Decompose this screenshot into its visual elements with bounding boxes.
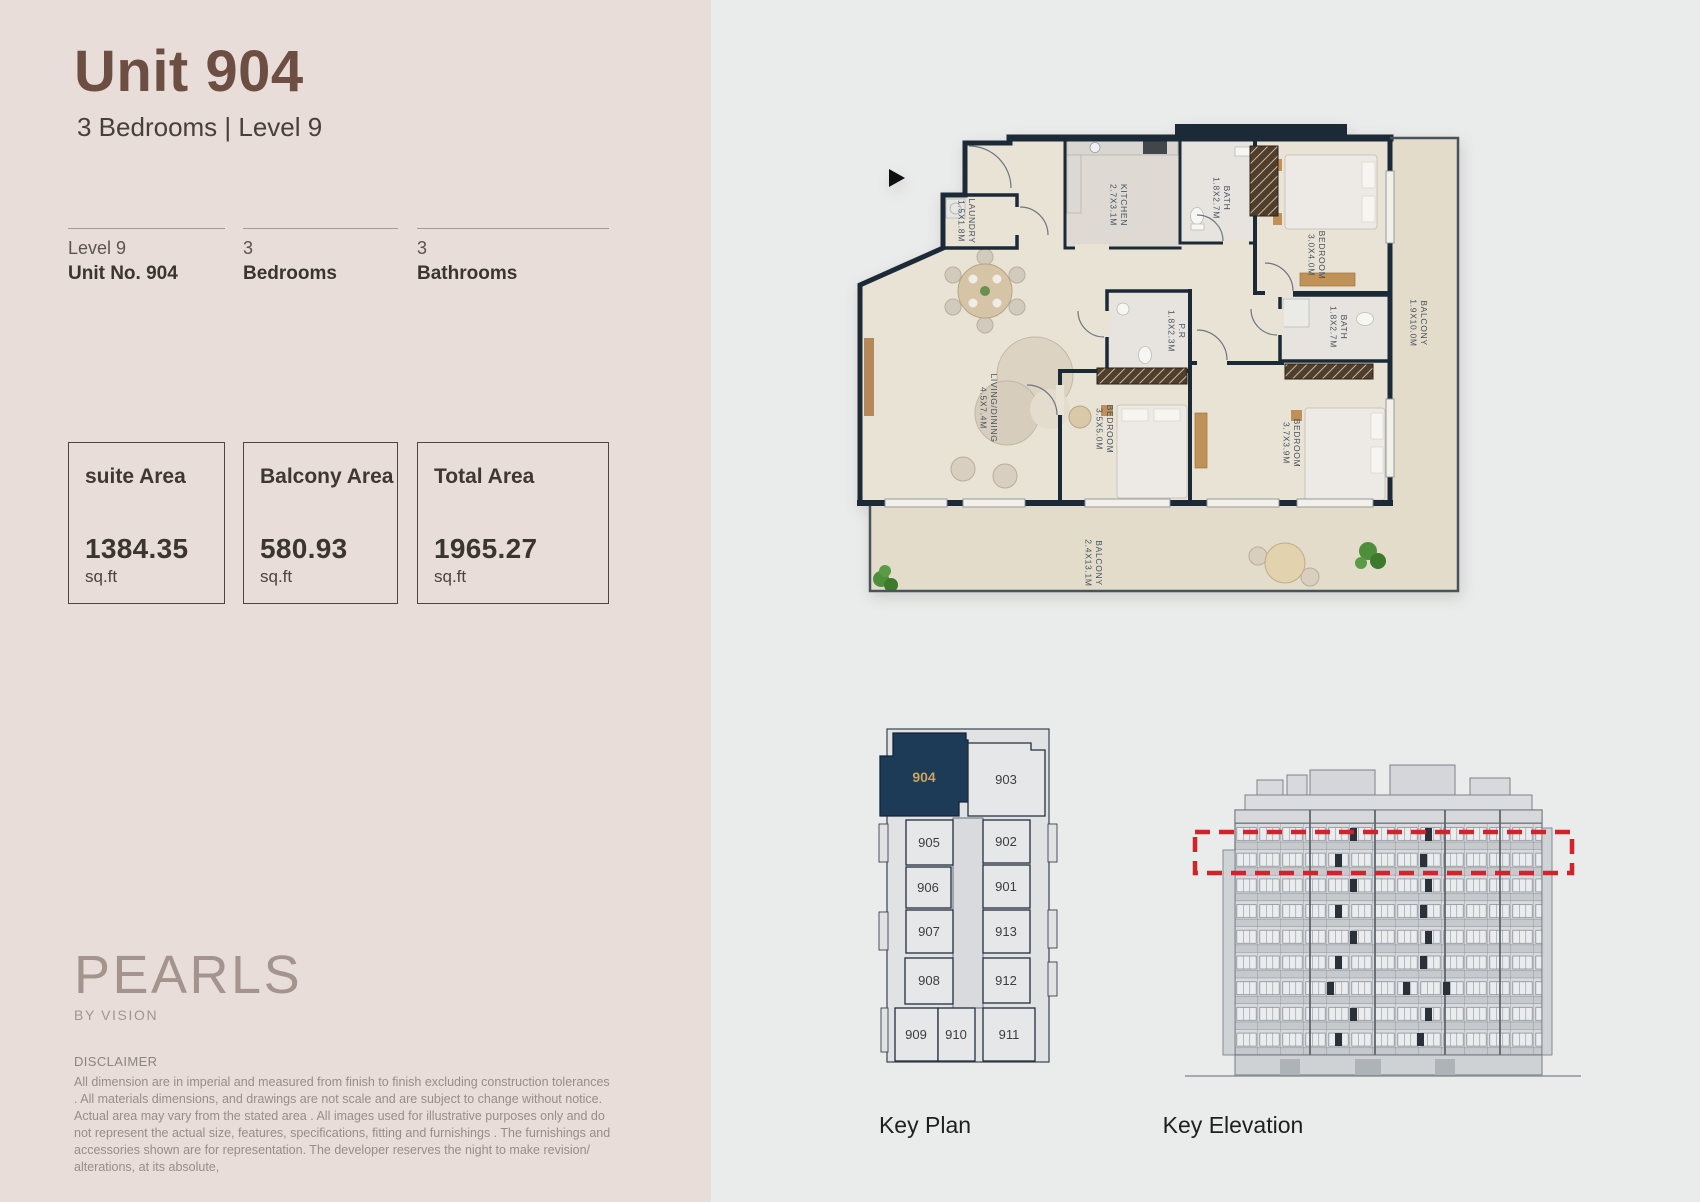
total-area-unit: sq.ft [434,567,608,587]
svg-text:KITCHEN2.7X3.1M: KITCHEN2.7X3.1M [1109,184,1130,226]
tv-console [864,338,874,416]
spec-level: Level 9 Unit No. 904 [68,228,225,285]
balcony-area-unit: sq.ft [260,567,397,587]
spec-bedrooms-label: Bedrooms [243,263,398,285]
disclaimer-body: All dimension are in imperial and measur… [74,1074,614,1176]
svg-text:912: 912 [995,973,1017,988]
total-area-value: 1965.27 [434,533,608,565]
suite-area-label: suite Area [85,465,224,489]
svg-text:909: 909 [905,1027,927,1042]
svg-text:BEDROOM3.7X3.9M: BEDROOM3.7X3.9M [1282,419,1303,468]
svg-text:908: 908 [918,973,940,988]
unit-number-904: 904 [912,769,936,785]
left-panel: Unit 904 3 Bedrooms | Level 9 Level 9 Un… [0,0,711,1202]
suite-area-unit: sq.ft [85,567,224,587]
floor-plan-image: LAUNDRY1.5X1.8M KITCHEN2.7X3.1M BATH1.8X… [845,113,1467,610]
svg-text:901: 901 [995,879,1017,894]
suite-area-value: 1384.35 [85,533,224,565]
svg-text:BALCONY1.9X10.0M: BALCONY1.9X10.0M [1409,299,1430,346]
balcony-area-value: 580.93 [260,533,397,565]
svg-text:903: 903 [995,772,1017,787]
svg-text:BEDROOM3.0X4.0M: BEDROOM3.0X4.0M [1307,231,1328,280]
svg-text:910: 910 [945,1027,967,1042]
total-area-box: Total Area 1965.27 sq.ft [417,442,609,604]
balcony-area-box: Balcony Area 580.93 sq.ft [243,442,398,604]
facade [1235,810,1542,1055]
svg-text:BALCONY2.4X13.1M: BALCONY2.4X13.1M [1084,539,1105,586]
svg-text:LAUNDRY1.5X1.8M: LAUNDRY1.5X1.8M [957,198,978,243]
svg-text:913: 913 [995,924,1017,939]
roof-structures [1245,765,1532,810]
right-wing [1542,828,1552,1055]
key-plan-image: 904 903 905 902 906 901 907 913 908 912 … [863,726,1063,1066]
suite-area-box: suite Area 1384.35 sq.ft [68,442,225,604]
parapet-bar [1175,124,1347,137]
spec-bathrooms-label: Bathrooms [417,263,609,285]
spec-bathrooms: 3 Bathrooms [417,228,609,285]
parapet-band [1235,810,1542,823]
svg-text:905: 905 [918,835,940,850]
brand-logo: PEARLS [74,944,302,1006]
disclaimer-block: DISCLAIMER All dimension are in imperial… [74,1054,614,1176]
brand-block: PEARLS BY VISION [74,944,302,1023]
key-elevation-caption: Key Elevation [1108,1112,1358,1139]
left-wing [1223,850,1235,1055]
svg-text:BEDROOM3.5X5.0M: BEDROOM3.5X5.0M [1095,405,1116,454]
page-title: Unit 904 [74,38,304,105]
spec-level-line1: Level 9 [68,238,225,259]
page-subtitle: 3 Bedrooms | Level 9 [77,112,322,143]
svg-text:907: 907 [918,924,940,939]
spec-bedrooms: 3 Bedrooms [243,228,398,285]
armchair [951,457,975,481]
armchair [993,464,1017,488]
svg-text:906: 906 [917,880,939,895]
svg-text:902: 902 [995,834,1017,849]
brand-tagline: BY VISION [74,1007,302,1023]
key-plan-caption: Key Plan [825,1112,1025,1139]
spec-bathrooms-count: 3 [417,238,609,259]
spec-level-line2: Unit No. 904 [68,263,225,285]
brochure-page: Unit 904 3 Bedrooms | Level 9 Level 9 Un… [0,0,1700,1202]
balcony-area-label: Balcony Area [260,465,397,489]
key-elevation-image [1185,748,1585,1093]
svg-text:911: 911 [999,1027,1020,1042]
spec-bedrooms-count: 3 [243,238,398,259]
disclaimer-heading: DISCLAIMER [74,1054,614,1069]
total-area-label: Total Area [434,465,608,489]
elevation-building [1185,765,1581,1076]
entry-marker-icon [889,169,905,187]
